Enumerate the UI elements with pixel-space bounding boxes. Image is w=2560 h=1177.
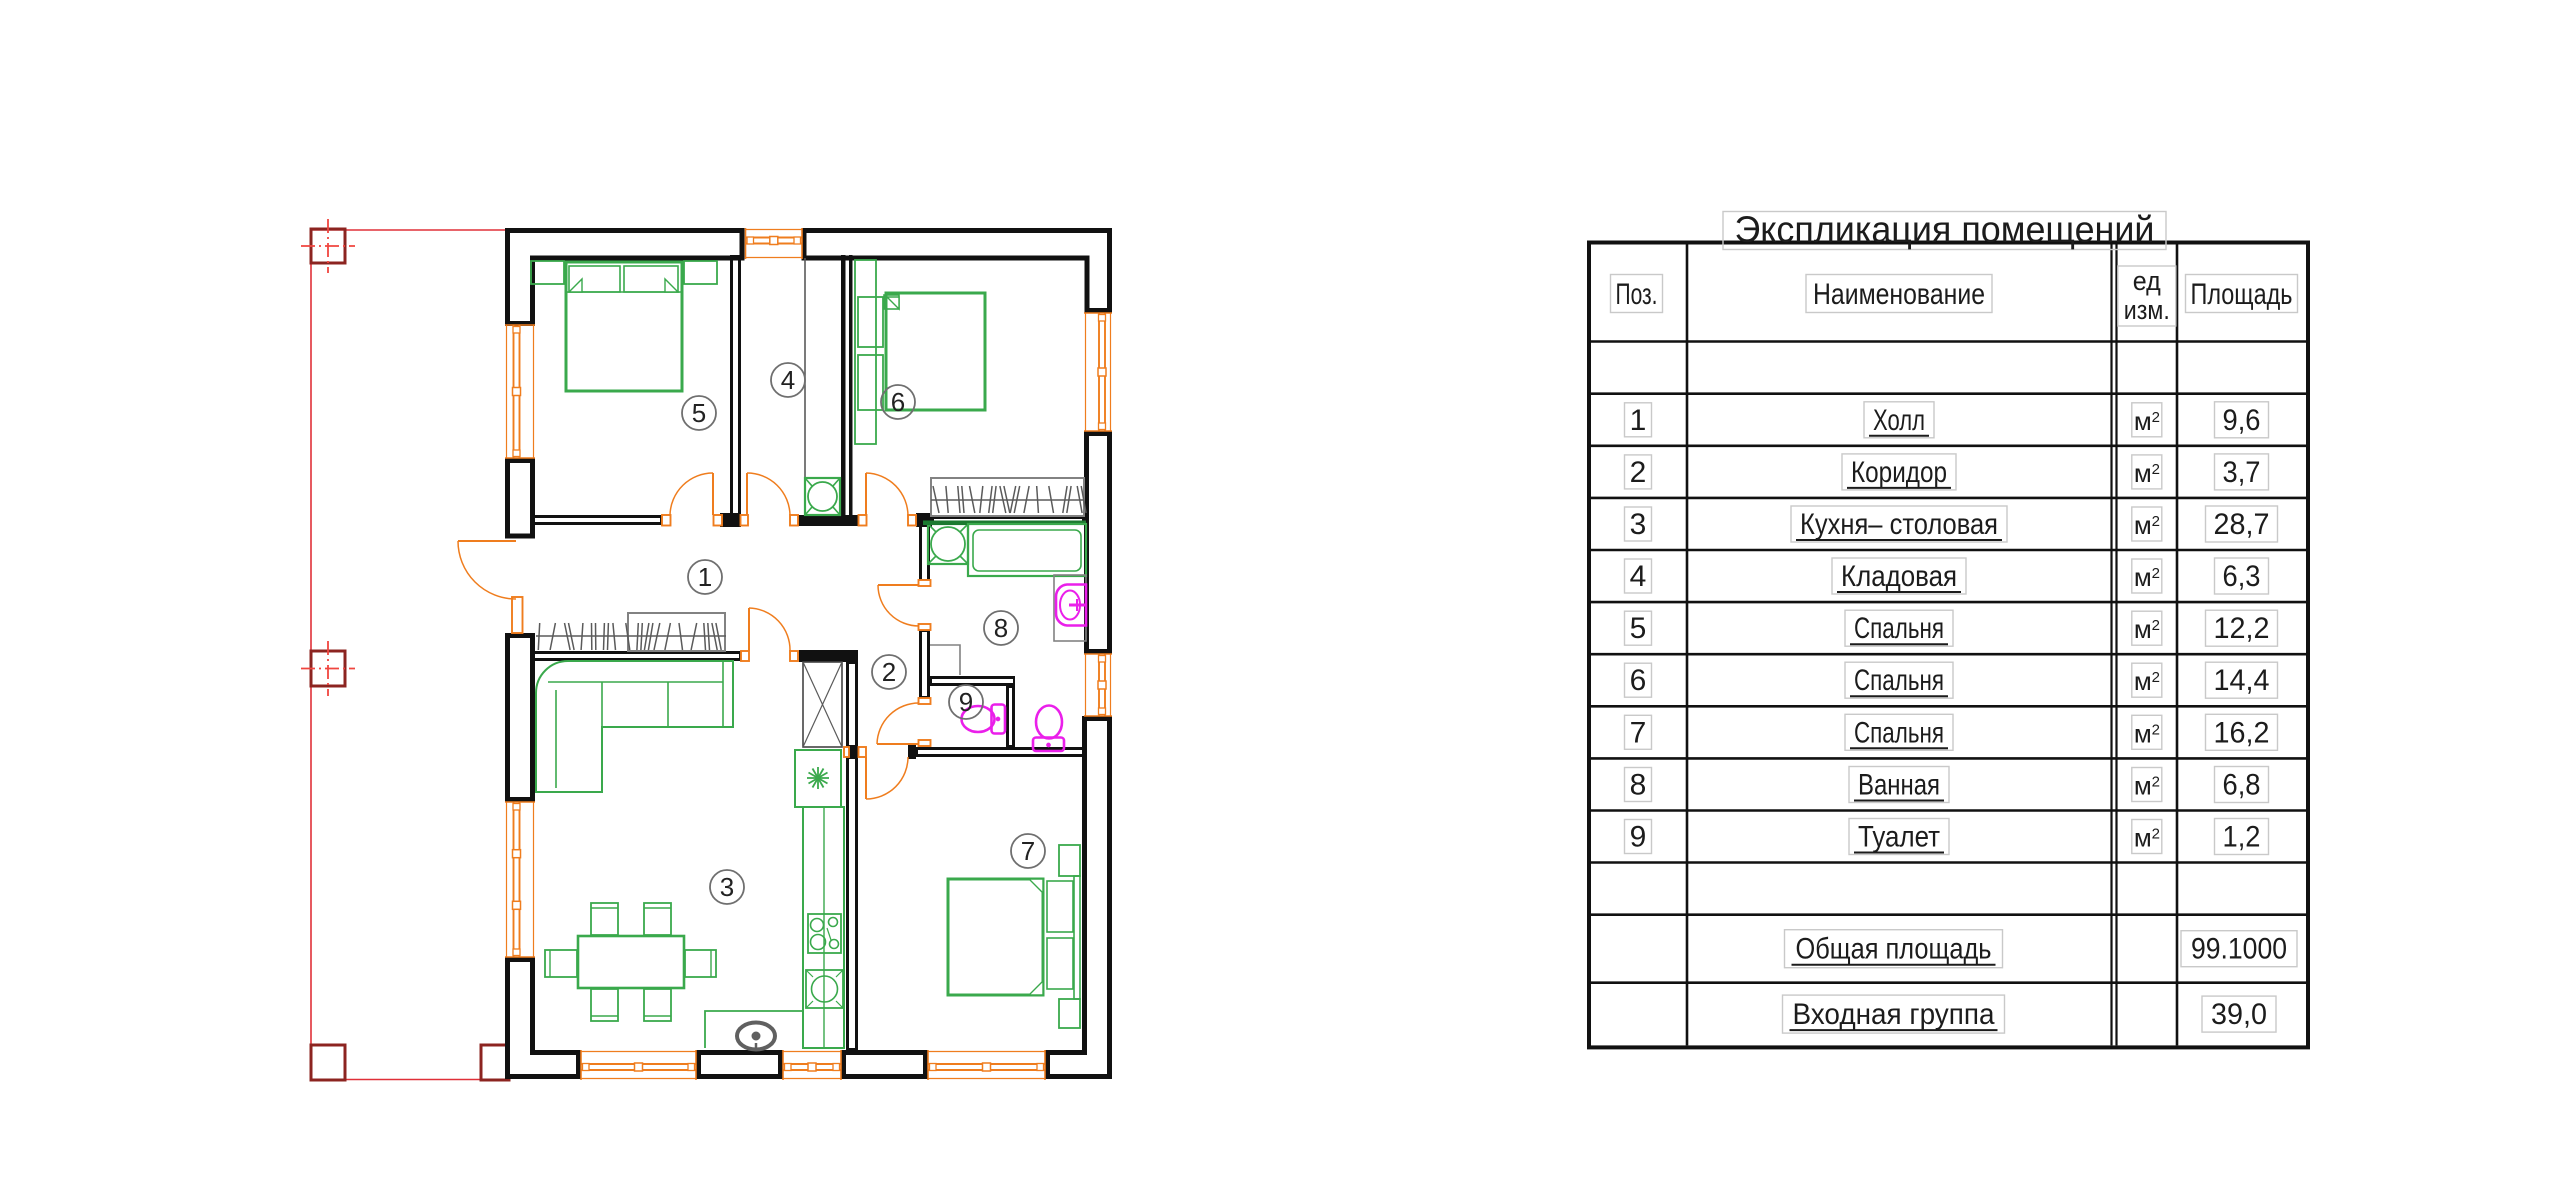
svg-text:м: м <box>2134 406 2152 436</box>
svg-text:4: 4 <box>1630 560 1647 593</box>
svg-text:28,7: 28,7 <box>2214 508 2270 541</box>
svg-text:Спальня: Спальня <box>1854 612 1944 645</box>
svg-text:Наименование: Наименование <box>1813 278 1985 311</box>
svg-text:2: 2 <box>2152 461 2160 478</box>
svg-text:м: м <box>2134 458 2152 488</box>
svg-text:Поз.: Поз. <box>1616 278 1658 311</box>
svg-text:16,2: 16,2 <box>2214 716 2270 749</box>
svg-text:5: 5 <box>692 398 706 428</box>
svg-text:9,6: 9,6 <box>2223 404 2261 437</box>
svg-text:2: 2 <box>1630 456 1647 489</box>
svg-text:2: 2 <box>2152 409 2160 426</box>
svg-text:7: 7 <box>1630 716 1647 749</box>
svg-text:ед: ед <box>2133 266 2161 296</box>
svg-text:Общая площадь: Общая площадь <box>1796 933 1992 966</box>
svg-text:м: м <box>2134 771 2152 801</box>
svg-text:3: 3 <box>1630 508 1647 541</box>
svg-text:Холл: Холл <box>1873 404 1925 437</box>
svg-text:Ванная: Ванная <box>1858 769 1940 802</box>
svg-text:3,7: 3,7 <box>2223 456 2261 489</box>
svg-text:6,3: 6,3 <box>2223 560 2261 593</box>
svg-text:2: 2 <box>2152 669 2160 686</box>
svg-text:изм.: изм. <box>2124 295 2170 325</box>
svg-text:Спальня: Спальня <box>1854 664 1944 697</box>
svg-text:14,4: 14,4 <box>2214 664 2270 697</box>
svg-text:м: м <box>2134 718 2152 748</box>
svg-text:6: 6 <box>891 387 905 417</box>
svg-text:8: 8 <box>1630 769 1647 802</box>
svg-text:4: 4 <box>781 365 795 395</box>
svg-text:12,2: 12,2 <box>2214 612 2270 645</box>
svg-text:Туалет: Туалет <box>1858 821 1940 854</box>
svg-text:6,8: 6,8 <box>2223 769 2261 802</box>
svg-text:2: 2 <box>2152 565 2160 582</box>
svg-text:2: 2 <box>2152 774 2160 791</box>
svg-text:1: 1 <box>698 562 712 592</box>
svg-text:7: 7 <box>1021 836 1035 866</box>
svg-text:6: 6 <box>1630 664 1647 697</box>
svg-text:Экспликация помещений: Экспликация помещений <box>1735 209 2155 250</box>
svg-text:Площадь: Площадь <box>2191 278 2293 311</box>
svg-text:9: 9 <box>1630 821 1647 854</box>
svg-text:3: 3 <box>720 872 734 902</box>
svg-text:Кухня– столовая: Кухня– столовая <box>1800 508 1998 541</box>
svg-text:Кладовая: Кладовая <box>1841 560 1957 593</box>
svg-text:м: м <box>2134 562 2152 592</box>
svg-text:м: м <box>2134 510 2152 540</box>
svg-text:9: 9 <box>959 687 973 717</box>
svg-text:2: 2 <box>2152 826 2160 843</box>
svg-text:Спальня: Спальня <box>1854 716 1944 749</box>
svg-text:1: 1 <box>1630 404 1647 437</box>
svg-text:Коридор: Коридор <box>1851 456 1947 489</box>
svg-text:м: м <box>2134 614 2152 644</box>
svg-text:м: м <box>2134 823 2152 853</box>
svg-text:99.1000: 99.1000 <box>2191 933 2287 966</box>
svg-text:м: м <box>2134 666 2152 696</box>
svg-text:2: 2 <box>2152 617 2160 634</box>
svg-text:1,2: 1,2 <box>2223 821 2261 854</box>
svg-text:39,0: 39,0 <box>2211 998 2267 1031</box>
svg-text:5: 5 <box>1630 612 1647 645</box>
svg-text:2: 2 <box>2152 513 2160 530</box>
svg-text:2: 2 <box>882 657 896 687</box>
svg-text:2: 2 <box>2152 721 2160 738</box>
svg-text:Входная группа: Входная группа <box>1793 998 1995 1031</box>
svg-text:8: 8 <box>994 613 1008 643</box>
